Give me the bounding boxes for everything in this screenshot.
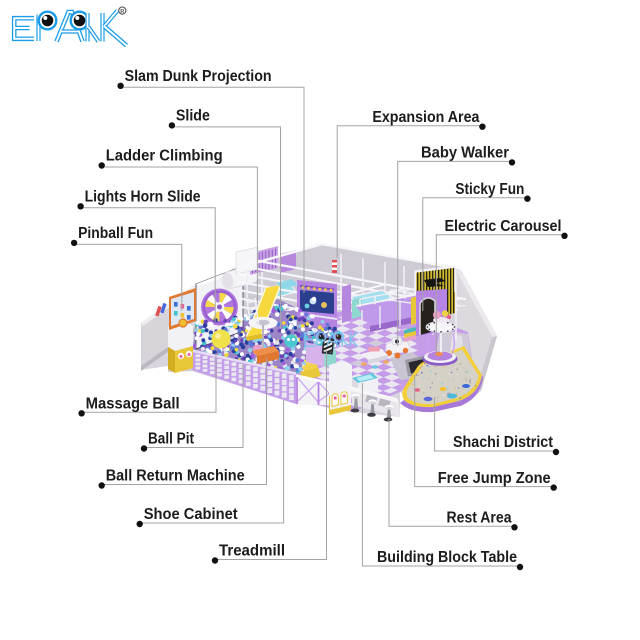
svg-text:Baby Walker: Baby Walker xyxy=(421,145,509,162)
svg-text:Expansion Area: Expansion Area xyxy=(372,109,479,126)
svg-text:Pinball Fun: Pinball Fun xyxy=(78,225,153,242)
svg-text:Electric Carousel: Electric Carousel xyxy=(445,218,562,235)
svg-text:R: R xyxy=(120,9,124,15)
svg-text:Rest Area: Rest Area xyxy=(447,510,512,527)
svg-text:Sticky Fun: Sticky Fun xyxy=(455,181,524,198)
svg-text:Ladder Climbing: Ladder Climbing xyxy=(106,148,223,165)
svg-text:Building Block Table: Building Block Table xyxy=(377,549,517,566)
svg-text:Slide: Slide xyxy=(176,108,210,125)
svg-text:Shachi District: Shachi District xyxy=(453,434,553,451)
svg-text:Free Jump Zone: Free Jump Zone xyxy=(438,470,551,487)
svg-text:Treadmill: Treadmill xyxy=(219,543,285,560)
svg-text:Ball Return Machine: Ball Return Machine xyxy=(106,468,245,485)
svg-text:Lights Horn Slide: Lights Horn Slide xyxy=(85,189,201,206)
svg-text:Ball Pit: Ball Pit xyxy=(148,431,194,448)
svg-text:Slam Dunk Projection: Slam Dunk Projection xyxy=(125,68,272,85)
svg-text:Massage Ball: Massage Ball xyxy=(86,396,180,413)
svg-text:Shoe Cabinet: Shoe Cabinet xyxy=(144,506,238,523)
